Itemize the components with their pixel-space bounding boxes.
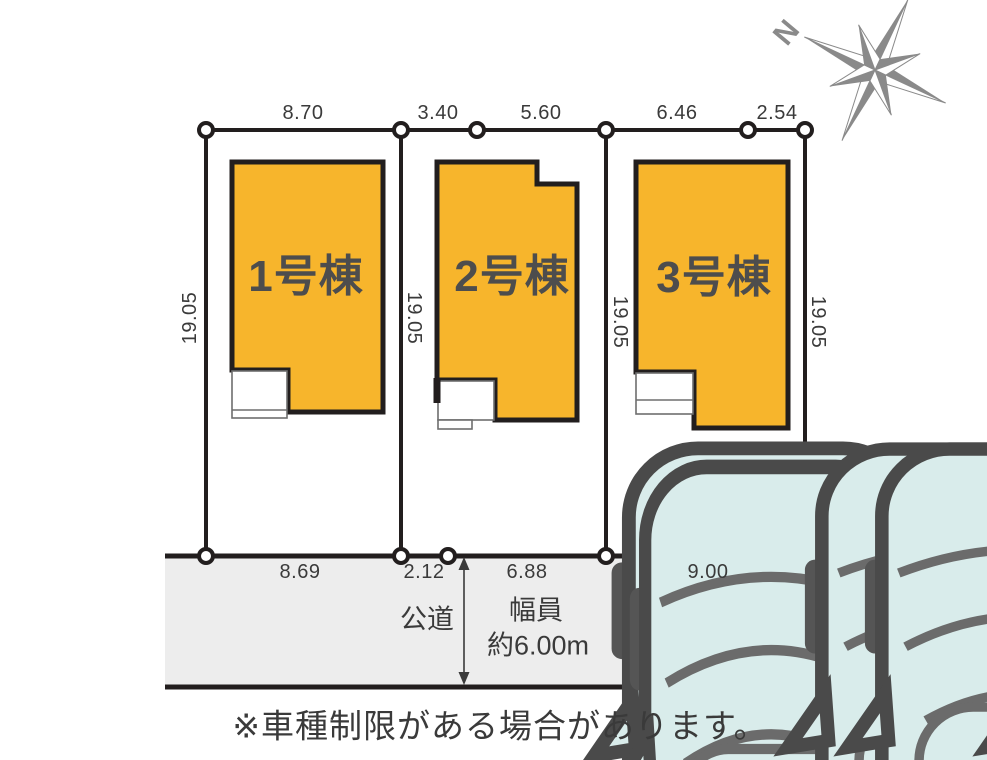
- dim-top-5: 2.54: [757, 103, 798, 123]
- dim-bottom-3: 6.88: [507, 562, 548, 582]
- dim-mid-1: 19.05: [404, 292, 424, 345]
- dim-bottom-2: 2.12: [404, 562, 445, 582]
- building-3-label: 3号棟: [656, 256, 771, 300]
- dim-bottom-4: 9.00: [688, 562, 729, 582]
- dim-top-4: 6.46: [657, 103, 698, 123]
- road-name-label: 公道: [400, 607, 454, 634]
- dim-mid-2: 19.05: [610, 296, 630, 349]
- dim-top-1: 8.70: [283, 103, 324, 123]
- vehicle-restriction-note: ※車種制限がある場合があります。: [232, 710, 767, 743]
- site-plan: N 8.70 3.40 5.60 6.46 2.54 19.05 19.05 1…: [0, 0, 987, 760]
- dim-left: 19.05: [180, 292, 200, 345]
- dim-top-2: 3.40: [418, 103, 459, 123]
- dim-bottom-1: 8.69: [280, 562, 321, 582]
- road-width-label-2: 約6.00m: [487, 633, 589, 660]
- dim-right: 19.05: [808, 296, 828, 349]
- building-2-label: 2号棟: [454, 255, 569, 299]
- building-1-label: 1号棟: [248, 255, 363, 299]
- road-width-label-1: 幅員: [509, 598, 563, 625]
- compass-rose-icon: [771, 0, 978, 174]
- dim-top-3: 5.60: [521, 103, 562, 123]
